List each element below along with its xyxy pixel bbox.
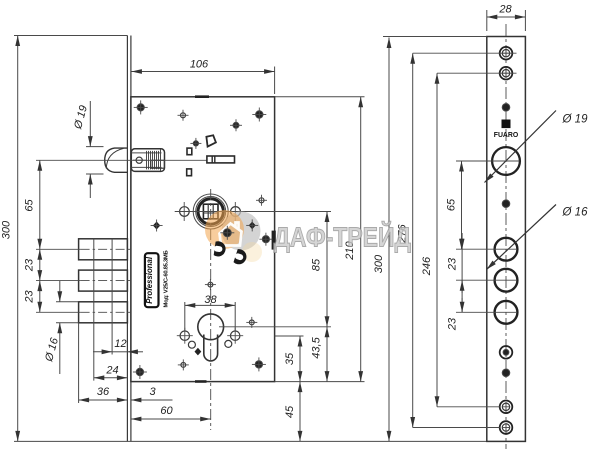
- svg-text:Professional: Professional: [145, 256, 154, 304]
- svg-text:23: 23: [447, 317, 459, 331]
- svg-text:Ø 19: Ø 19: [562, 114, 589, 126]
- svg-text:23: 23: [447, 257, 459, 271]
- svg-text:43,5: 43,5: [311, 336, 323, 358]
- svg-text:24: 24: [105, 364, 118, 376]
- svg-text:35: 35: [284, 352, 296, 365]
- svg-text:23: 23: [24, 258, 36, 272]
- svg-text:ДАФ-ТРЕЙД: ДАФ-ТРЕЙД: [274, 221, 412, 253]
- svg-text:Мод: V25/C-60.85.3МБ: Мод: V25/C-60.85.3МБ: [163, 249, 169, 307]
- svg-text:28: 28: [498, 4, 512, 16]
- svg-text:23: 23: [24, 290, 36, 304]
- svg-text:45: 45: [284, 405, 296, 418]
- svg-text:246: 246: [421, 256, 433, 276]
- svg-text:65: 65: [446, 198, 458, 211]
- svg-text:106: 106: [190, 59, 209, 71]
- svg-text:12: 12: [114, 338, 126, 350]
- svg-text:Ø 16: Ø 16: [43, 336, 61, 364]
- svg-text:65: 65: [24, 199, 36, 212]
- svg-text:300: 300: [1, 220, 13, 239]
- svg-text:FUARO: FUARO: [494, 132, 519, 139]
- svg-text:3: 3: [149, 386, 156, 398]
- svg-text:85: 85: [311, 258, 323, 271]
- svg-text:300: 300: [373, 254, 385, 273]
- svg-text:36: 36: [97, 386, 110, 398]
- svg-text:60: 60: [160, 405, 173, 417]
- svg-text:Ø 16: Ø 16: [562, 207, 589, 219]
- svg-text:Ø 19: Ø 19: [72, 104, 90, 131]
- svg-text:38: 38: [204, 294, 217, 306]
